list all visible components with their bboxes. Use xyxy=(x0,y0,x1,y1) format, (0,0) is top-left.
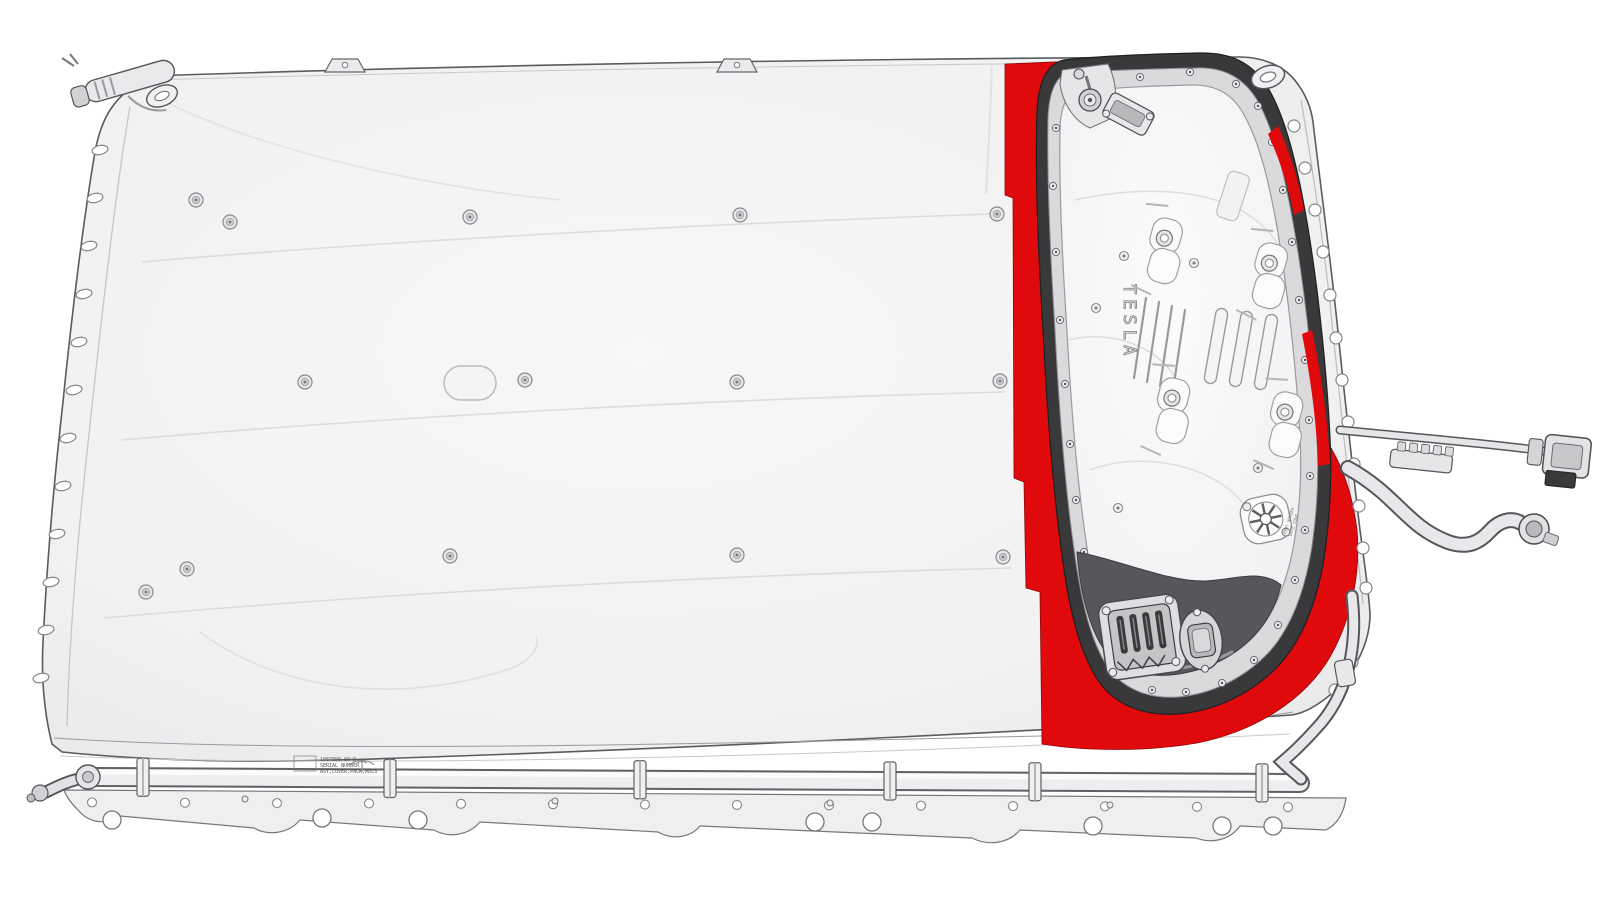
flange-screw-dot xyxy=(1052,185,1054,187)
flange-hole-large xyxy=(103,811,121,829)
flange-plate xyxy=(64,790,1346,843)
flange-hole xyxy=(733,800,742,809)
flange-screw-dot xyxy=(1064,383,1066,385)
flange-hole xyxy=(1193,802,1202,811)
flange-screw-dot xyxy=(1189,71,1191,73)
flange-screw-dot xyxy=(1253,659,1255,661)
flange-screw-dot xyxy=(1294,579,1296,581)
flange-screw-dot xyxy=(1291,241,1293,243)
battery-pack-illustration: TESLA PART NUMBER DATE CODE xyxy=(0,0,1600,899)
flange-screw-dot xyxy=(1075,499,1077,501)
lid-screw-dot xyxy=(1095,307,1098,310)
bolt-dot xyxy=(999,380,1002,383)
flange-hole xyxy=(1360,582,1372,594)
flange-hole xyxy=(641,800,650,809)
flange-hole-large xyxy=(409,811,427,829)
flange-screw-dot xyxy=(1304,359,1306,361)
flange-hole xyxy=(457,799,466,808)
flange-screw-dot xyxy=(1055,251,1057,253)
bracket-pin xyxy=(1409,443,1418,453)
flange-hole xyxy=(1317,246,1329,258)
flange-hole xyxy=(917,801,926,810)
flange-hole xyxy=(181,798,190,807)
flange-hole-large xyxy=(806,813,824,831)
flange-hole xyxy=(273,799,282,808)
flange-hole xyxy=(1336,374,1348,386)
hv-connector xyxy=(1097,593,1187,681)
flange-screw-dot xyxy=(1257,105,1259,107)
bolt-dot xyxy=(304,381,307,384)
flange-screw xyxy=(1107,802,1113,808)
bolt-dot xyxy=(229,221,232,224)
lid-screw-dot xyxy=(1193,262,1196,265)
flange-screw-dot xyxy=(1304,529,1306,531)
serial-line3: ASY,COVER,PACK,MDLS xyxy=(320,769,377,775)
flange-hole-large xyxy=(1264,817,1282,835)
tesla-embossed-logo: TESLA xyxy=(1119,284,1139,360)
bolt-dot xyxy=(524,379,527,382)
tab-screw xyxy=(734,62,740,68)
lid-screw-dot xyxy=(1123,255,1126,258)
lid-screw-dot xyxy=(1257,467,1260,470)
bolt-dot xyxy=(736,381,739,384)
flange-hole xyxy=(88,798,97,807)
flange-hole xyxy=(1324,289,1336,301)
flange-hole xyxy=(1353,500,1365,512)
flange-screw-dot xyxy=(1277,624,1279,626)
bolt-dot xyxy=(195,199,198,202)
flange-screw-dot xyxy=(1309,475,1311,477)
bracket-pin xyxy=(1445,447,1454,457)
bolt-dot xyxy=(1002,556,1005,559)
flange-hole xyxy=(1309,204,1321,216)
flange-hole xyxy=(1288,120,1300,132)
bolt-dot xyxy=(186,568,189,571)
flange-screw-dot xyxy=(1059,319,1061,321)
bolt-dot xyxy=(449,555,452,558)
flange-screw xyxy=(242,796,248,802)
harness-bracket xyxy=(1389,441,1453,473)
flange-screw-dot xyxy=(1298,299,1300,301)
bolt-dot xyxy=(996,213,999,216)
flange-hole xyxy=(1009,802,1018,811)
flange-screw-dot xyxy=(1308,419,1310,421)
flange-screw-dot xyxy=(1235,83,1237,85)
flange-screw-dot xyxy=(1221,682,1223,684)
bracket-pin xyxy=(1397,442,1406,452)
flange-screw-dot xyxy=(1069,443,1071,445)
lift-handle-recess xyxy=(444,366,496,400)
flange-screw xyxy=(552,798,558,804)
flange-hole xyxy=(1299,162,1311,174)
bracket-pin xyxy=(1433,445,1442,455)
flange-hole xyxy=(365,799,374,808)
flange-hole xyxy=(1284,803,1293,812)
flange-hole xyxy=(1330,332,1342,344)
flange-screw-dot xyxy=(1139,76,1141,78)
bracket-pin xyxy=(1421,444,1430,454)
mounting-flange-bottom xyxy=(64,790,1346,843)
flange-hole-large xyxy=(1213,817,1231,835)
bolt-dot xyxy=(739,214,742,217)
flange-screw-dot xyxy=(1151,689,1153,691)
flange-hole xyxy=(1357,542,1369,554)
flange-hole-large xyxy=(863,813,881,831)
bolt-dot xyxy=(145,591,148,594)
hv-harness-connector xyxy=(1525,432,1592,489)
flange-screw-dot xyxy=(1282,189,1284,191)
flange-hole-large xyxy=(1084,817,1102,835)
tab-screw xyxy=(342,62,348,68)
flange-screw xyxy=(827,800,833,806)
bolt-dot xyxy=(469,216,472,219)
bolt-dot xyxy=(736,554,739,557)
flange-hole-large xyxy=(313,809,331,827)
flange-screw-dot xyxy=(1055,127,1057,129)
flange-screw-dot xyxy=(1185,691,1187,693)
hose-end-connector xyxy=(1519,514,1559,546)
lid-screw-dot xyxy=(1117,507,1120,510)
